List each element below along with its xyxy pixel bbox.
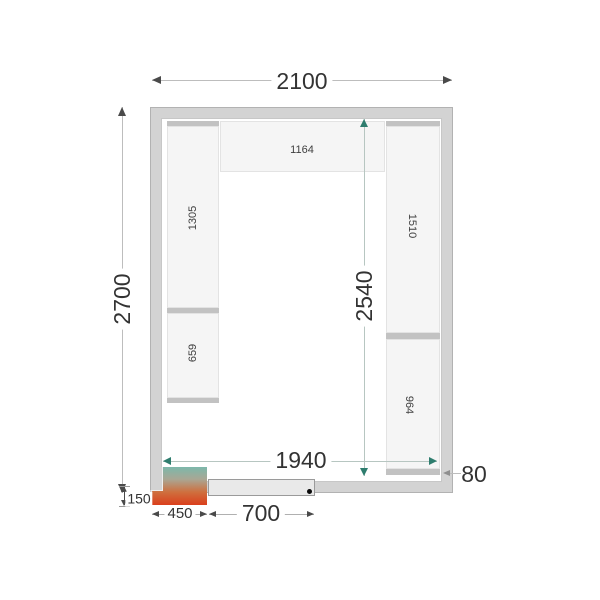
dim-unit-offset-label: 150 bbox=[125, 492, 152, 507]
wall-corner-overlay bbox=[150, 467, 163, 491]
arrow-right-icon bbox=[200, 511, 207, 517]
dim-tick bbox=[119, 486, 130, 487]
shelf-cap-icon bbox=[386, 469, 440, 475]
shelf-left-upper-label: 1305 bbox=[187, 206, 199, 230]
arrow-right-icon bbox=[429, 457, 437, 465]
shelf-cap-icon bbox=[167, 398, 219, 403]
floor-plan-canvas: 1164 1305 659 1510 964 2100 2700 2540 19… bbox=[0, 0, 600, 600]
shelf-right-upper-label: 1510 bbox=[406, 214, 418, 238]
arrow-left-icon bbox=[443, 470, 450, 476]
dim-outer-width-label: 2100 bbox=[271, 69, 332, 93]
dim-inner-width-label: 1940 bbox=[270, 448, 331, 472]
dim-wall-thickness-label: 80 bbox=[456, 462, 492, 486]
shelf-top-label: 1164 bbox=[290, 144, 314, 156]
door-hinge-dot bbox=[307, 489, 312, 494]
arrow-right-icon bbox=[307, 511, 314, 517]
arrow-left-icon bbox=[163, 457, 171, 465]
arrow-left-icon bbox=[152, 76, 161, 84]
dim-outer-depth-label: 2700 bbox=[110, 268, 134, 329]
arrow-down-icon bbox=[360, 468, 368, 476]
arrow-left-icon bbox=[152, 511, 159, 517]
door-leaf bbox=[208, 479, 315, 496]
dim-inner-depth-label: 2540 bbox=[352, 265, 376, 326]
arrow-right-icon bbox=[443, 76, 452, 84]
arrow-left-icon bbox=[209, 511, 216, 517]
shelf-right-lower-label: 964 bbox=[403, 396, 415, 414]
shelf-left-lower-label: 659 bbox=[187, 344, 199, 362]
dim-unit-width-label: 450 bbox=[164, 506, 195, 522]
arrow-up-icon bbox=[118, 107, 126, 116]
arrow-up-icon bbox=[360, 119, 368, 127]
dim-door-width-label: 700 bbox=[237, 501, 285, 525]
